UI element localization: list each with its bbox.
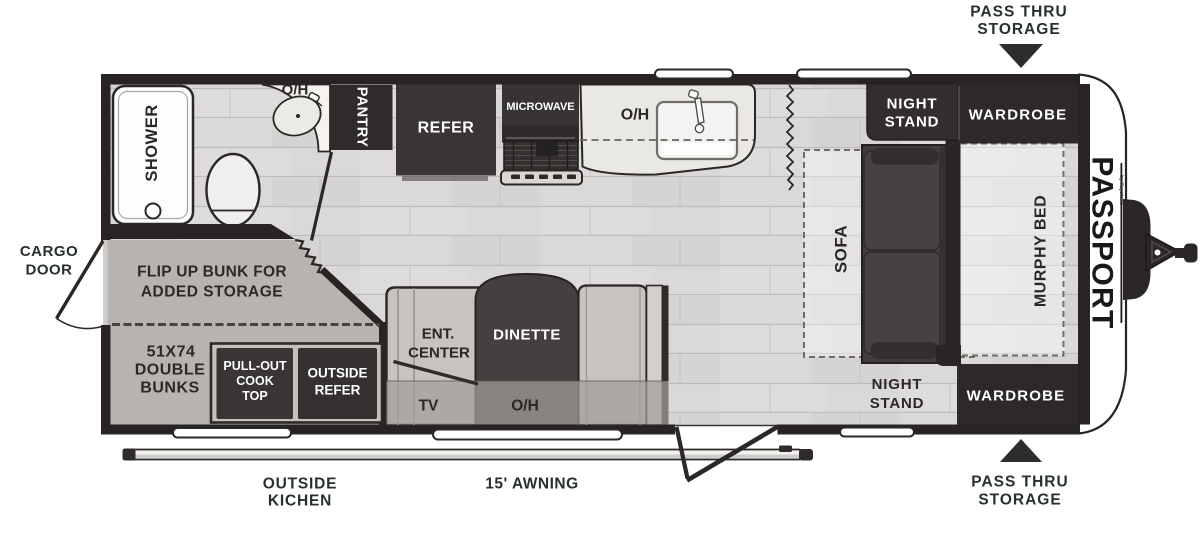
svg-text:STAND: STAND: [885, 114, 940, 131]
svg-text:NIGHT: NIGHT: [887, 96, 938, 113]
svg-text:ENT.: ENT.: [422, 326, 455, 343]
svg-text:O/H: O/H: [282, 82, 309, 99]
svg-text:REFER: REFER: [315, 383, 361, 398]
svg-text:MURPHY BED: MURPHY BED: [1033, 195, 1050, 307]
svg-text:FLIP UP BUNK FOR: FLIP UP BUNK FOR: [137, 264, 287, 281]
svg-text:51X74: 51X74: [147, 344, 196, 361]
svg-text:O/H: O/H: [621, 107, 649, 124]
svg-text:STORAGE: STORAGE: [977, 21, 1060, 38]
svg-text:REFER: REFER: [418, 120, 475, 137]
svg-text:CARGO: CARGO: [20, 243, 78, 260]
svg-text:PULL-OUT: PULL-OUT: [223, 359, 287, 373]
svg-text:CENTER: CENTER: [408, 345, 470, 362]
svg-text:STORAGE: STORAGE: [978, 492, 1061, 509]
svg-text:PASSPORT: PASSPORT: [1086, 156, 1119, 329]
svg-text:PASS THRU: PASS THRU: [971, 474, 1068, 491]
svg-text:BUNKS: BUNKS: [140, 380, 199, 397]
svg-text:TOP: TOP: [242, 389, 267, 403]
svg-text:WARDROBE: WARDROBE: [969, 107, 1068, 124]
svg-text:TV: TV: [419, 398, 439, 415]
svg-text:DOOR: DOOR: [26, 262, 73, 279]
svg-text:KICHEN: KICHEN: [268, 493, 332, 510]
svg-text:O/H: O/H: [511, 398, 539, 415]
svg-text:SOFA: SOFA: [832, 225, 851, 273]
svg-text:PASS THRU: PASS THRU: [970, 4, 1067, 21]
svg-text:WARDROBE: WARDROBE: [967, 388, 1066, 405]
svg-text:NIGHT: NIGHT: [872, 376, 923, 393]
svg-text:COOK: COOK: [236, 374, 274, 388]
svg-text:DOUBLE: DOUBLE: [135, 362, 206, 379]
svg-text:OUTSIDE: OUTSIDE: [263, 476, 338, 493]
svg-text:PANTRY: PANTRY: [354, 87, 370, 147]
svg-text:ADDED STORAGE: ADDED STORAGE: [141, 284, 283, 301]
svg-text:15' AWNING: 15' AWNING: [485, 476, 578, 493]
svg-text:MICROWAVE: MICROWAVE: [506, 101, 574, 113]
svg-text:DINETTE: DINETTE: [493, 327, 561, 344]
svg-text:OUTSIDE: OUTSIDE: [307, 366, 367, 381]
svg-text:SHOWER: SHOWER: [143, 104, 161, 181]
svg-text:STAND: STAND: [870, 395, 925, 412]
